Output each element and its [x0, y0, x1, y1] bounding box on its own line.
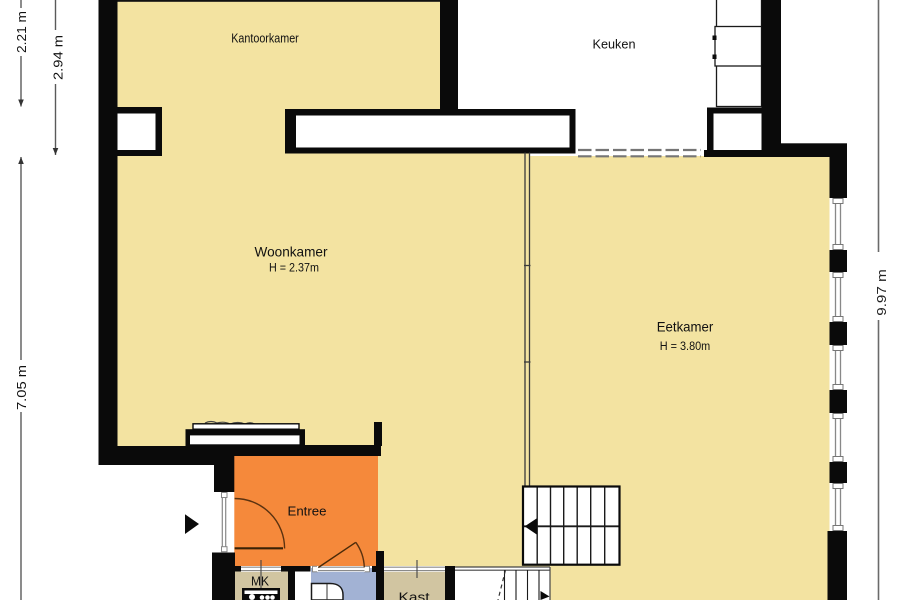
svg-text:2.21 m: 2.21 m [14, 11, 29, 53]
svg-text:Eetkamer: Eetkamer [657, 319, 714, 335]
svg-text:Kantoorkamer: Kantoorkamer [231, 31, 299, 46]
svg-text:Keuken: Keuken [593, 37, 636, 52]
svg-text:MK: MK [251, 573, 269, 588]
svg-text:2.94 m: 2.94 m [51, 35, 66, 80]
svg-text:Entree: Entree [288, 504, 327, 519]
svg-text:H = 3.80m: H = 3.80m [660, 341, 711, 353]
svg-text:H = 2.37m: H = 2.37m [269, 262, 319, 274]
svg-text:7.05 m: 7.05 m [14, 365, 29, 410]
svg-text:Woonkamer: Woonkamer [255, 243, 328, 259]
svg-text:Kast: Kast [399, 589, 430, 600]
svg-text:9.97 m: 9.97 m [874, 269, 889, 316]
